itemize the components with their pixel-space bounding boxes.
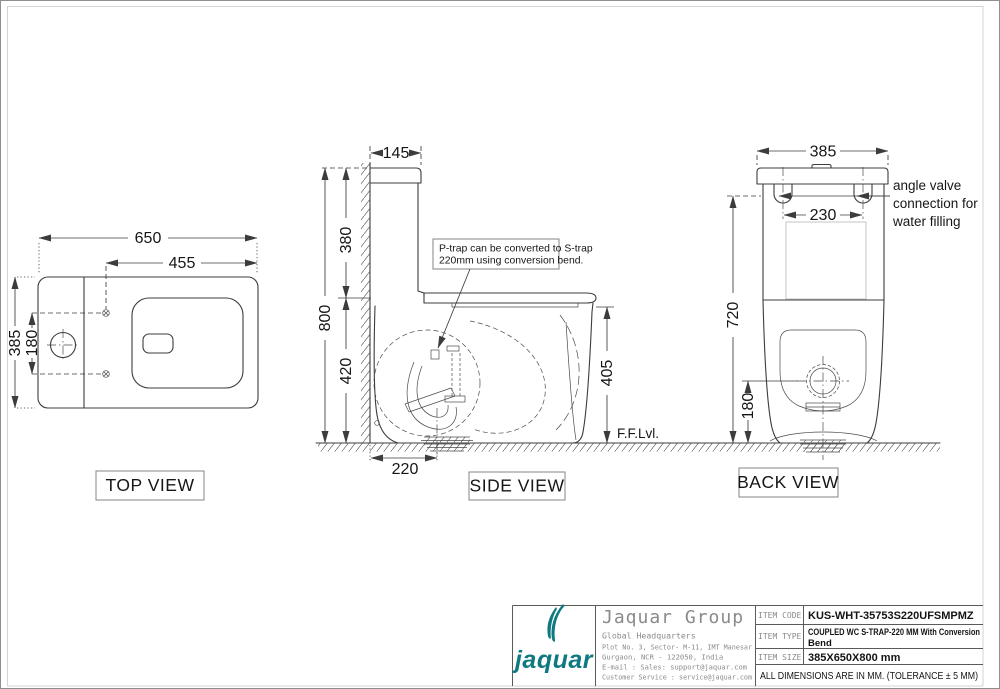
address-line-1: Global Headquarters — [602, 631, 696, 641]
dim-420-label: 420 — [338, 358, 355, 385]
angle-valve-line3: water filling — [892, 214, 961, 229]
technical-drawing: 650 455 385 180 TOP VIEW — [0, 0, 1000, 689]
dim-180-label: 180 — [24, 330, 41, 357]
dim-455-label: 455 — [169, 255, 196, 272]
item-size-value: 385X650X800 mm — [808, 652, 901, 664]
angle-valve-line2: connection for — [893, 196, 978, 211]
side-view-label: SIDE VIEW — [470, 476, 565, 496]
address-line-5: Customer Service : service@jaquar.com — [602, 673, 752, 682]
wall-section — [361, 146, 370, 443]
dim-220-label: 220 — [392, 461, 419, 478]
dim-650-label: 650 — [135, 230, 162, 247]
dim-385-label: 385 — [7, 330, 24, 357]
company-info: Jaquar Group Global Headquarters Plot No… — [602, 607, 753, 682]
address-line-2: Plot No. 3, Sector- M-11, IMT Manesar — [602, 643, 753, 652]
brand-wordmark: jaquar — [512, 646, 594, 674]
dim-230-label: 230 — [810, 207, 837, 224]
dim-180b-label: 180 — [740, 393, 757, 420]
top-view-label: TOP VIEW — [106, 475, 195, 495]
dim-405-label: 405 — [599, 360, 616, 387]
item-type-value-line1: COUPLED WC S-TRAP-220 MM With Conversion — [808, 627, 980, 638]
item-type-label: ITEM TYPE — [758, 632, 802, 641]
drawing-sheet: 650 455 385 180 TOP VIEW — [0, 0, 1000, 689]
tolerance-note: ALL DIMENSIONS ARE IN MM. (TOLERANCE ± 5… — [760, 671, 978, 682]
item-size-label: ITEM SIZE — [758, 653, 802, 662]
address-line-3: Gurgaon, NCR - 122050, India — [602, 653, 723, 662]
dim-800-label: 800 — [317, 305, 334, 332]
item-type-value-line2: Bend — [808, 638, 832, 649]
dim-145-label: 145 — [383, 145, 410, 162]
back-view-caption: BACK VIEW — [737, 468, 839, 497]
top-view-caption: TOP VIEW — [96, 471, 204, 500]
item-code-value: KUS-WHT-35753S220UFSMPMZ — [808, 610, 974, 622]
ptrap-note-line2: 220mm using conversion bend. — [439, 256, 583, 267]
floor-line — [316, 443, 940, 452]
side-view-caption: SIDE VIEW — [469, 472, 565, 500]
back-view-label: BACK VIEW — [737, 472, 839, 492]
item-code-label: ITEM CODE — [758, 611, 802, 620]
address-line-4: E-mail : Sales: support@jaquar.com — [602, 663, 747, 672]
sheet-outer-border — [1, 1, 1000, 689]
dim-720-label: 720 — [725, 302, 742, 329]
dim-385b-label: 385 — [810, 144, 837, 161]
ptrap-note-line1: P-trap can be converted to S-trap — [439, 244, 593, 255]
angle-valve-line1: angle valve — [893, 178, 961, 193]
floor-level-label: F.F.Lvl. — [617, 426, 659, 441]
dim-380-label: 380 — [338, 227, 355, 254]
company-name: Jaquar Group — [602, 607, 744, 628]
